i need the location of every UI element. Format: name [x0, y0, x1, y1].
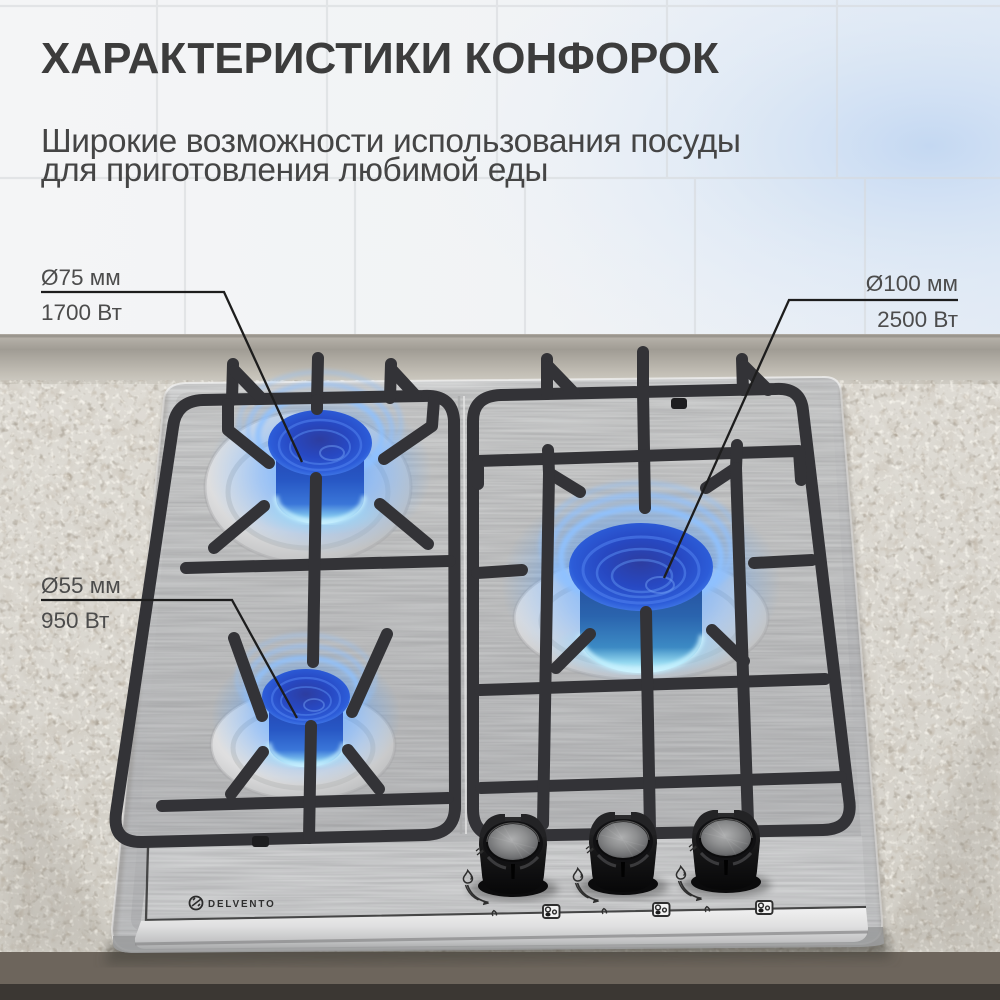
svg-text:DELVENTO: DELVENTO [208, 899, 276, 910]
svg-text:2500 Вт: 2500 Вт [877, 307, 958, 332]
svg-text:для приготовления любимой еды: для приготовления любимой еды [41, 152, 548, 189]
svg-text:ХАРАКТЕРИСТИКИ КОНФОРОК: ХАРАКТЕРИСТИКИ КОНФОРОК [41, 34, 719, 83]
svg-text:Ø75 мм: Ø75 мм [41, 265, 121, 290]
svg-text:950 Вт: 950 Вт [41, 608, 109, 633]
svg-text:Ø100 мм: Ø100 мм [866, 271, 958, 296]
svg-text:1700 Вт: 1700 Вт [41, 300, 122, 325]
svg-text:Ø55 мм: Ø55 мм [41, 573, 121, 598]
